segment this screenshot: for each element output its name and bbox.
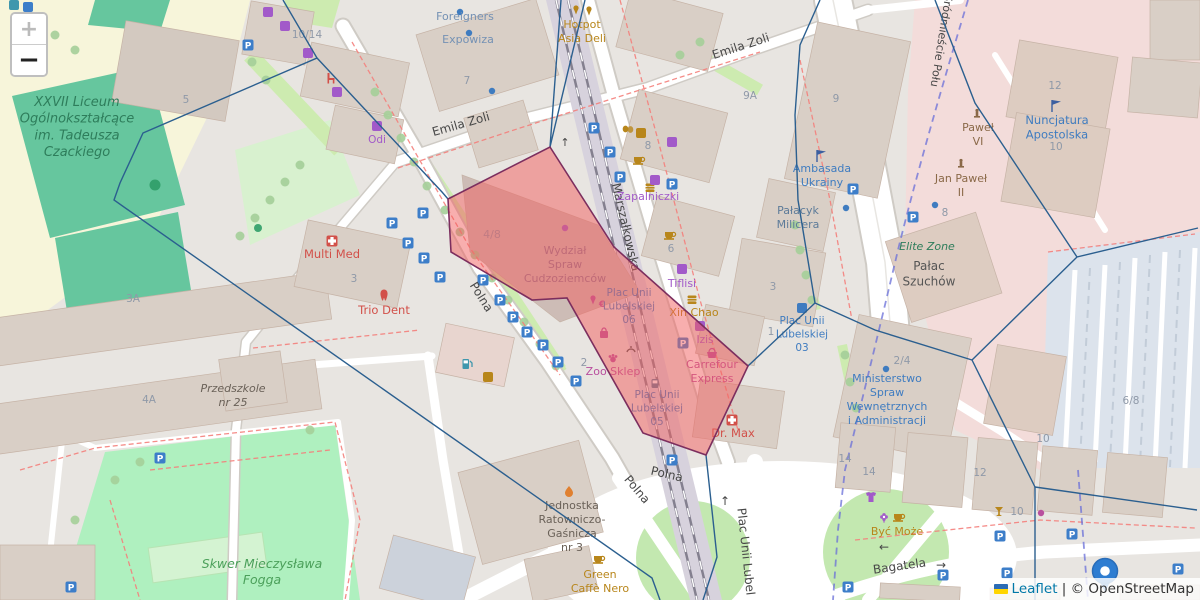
svg-text:P: P [524, 329, 531, 339]
parking-icon: P [387, 218, 398, 230]
map-label: 6/8 [1123, 395, 1140, 407]
map-label: 10/14 [292, 29, 323, 41]
map-label: 3A [126, 293, 141, 305]
parking-icon: P [538, 340, 549, 352]
svg-text:P: P [497, 297, 504, 307]
parking-icon: P [419, 253, 430, 265]
map-label: 3 [351, 273, 358, 285]
map-label: 14 [862, 466, 876, 478]
map-label: ↑ [560, 136, 569, 149]
sq-icon [332, 87, 342, 97]
attribution-separator: | [1058, 581, 1071, 597]
map-label: 6 [668, 243, 675, 255]
parking-icon: P [243, 40, 254, 52]
map-label: Foreigners [436, 10, 494, 23]
parking-icon: P [1173, 564, 1184, 576]
sq-icon [667, 137, 677, 147]
parking-icon: P [508, 312, 519, 324]
map-label: 7 [464, 75, 471, 87]
parking-icon: P [843, 582, 854, 594]
map-label: AmbasadaUkrainy [793, 162, 851, 189]
map-label: 8 [942, 207, 949, 219]
map-label: PałacykMilicera [777, 204, 820, 231]
svg-text:P: P [573, 378, 580, 388]
svg-text:P: P [555, 359, 562, 369]
parking-icon: P [908, 212, 919, 224]
sq-icon [483, 372, 493, 382]
map-label: MinisterstwoSprawWewnętrznychi Administr… [847, 372, 928, 427]
map-label: 9A [743, 90, 758, 102]
cross-icon [727, 415, 738, 426]
map-label: 2 [581, 357, 588, 369]
zoom-in-button[interactable]: + [12, 14, 46, 45]
cross-icon [327, 236, 338, 247]
dot-icon [489, 88, 495, 94]
sq-icon [677, 264, 687, 274]
attribution-bar: Leaflet | © OpenStreetMap [986, 578, 1200, 600]
parking-icon: P [155, 453, 166, 465]
svg-text:P: P [1175, 566, 1182, 576]
map-label: Tiflisi [667, 277, 696, 290]
map-label: 10 [1049, 141, 1062, 153]
svg-text:P: P [910, 214, 917, 224]
dot-icon [932, 202, 938, 208]
sq-icon [23, 2, 33, 12]
burger-icon [688, 296, 697, 305]
sq-icon [636, 128, 646, 138]
parking-icon: P [66, 582, 77, 594]
sq-icon [280, 21, 290, 31]
svg-text:P: P [997, 533, 1004, 543]
map-label: 8 [645, 140, 652, 152]
zoom-out-button[interactable]: − [12, 45, 46, 75]
parking-icon: P [495, 295, 506, 307]
sq-icon [650, 175, 660, 185]
leaflet-link[interactable]: Leaflet [1012, 581, 1058, 597]
parking-icon: P [553, 357, 564, 369]
parking-icon: P [418, 208, 429, 220]
svg-text:P: P [405, 240, 412, 250]
map-label: HotpotAsia Deli [558, 18, 606, 45]
parking-icon: P [848, 184, 859, 196]
svg-text:P: P [940, 572, 947, 582]
map-label: NuncjaturaApostolska [1025, 113, 1088, 142]
map-label: Trio Dent [357, 303, 410, 317]
map-label: 9 [833, 93, 840, 105]
parking-icon: P [667, 455, 678, 467]
map-label: ← [879, 540, 889, 554]
map-label: 10 [1036, 433, 1049, 445]
map-label: 10 [1010, 506, 1023, 518]
map-label: Być Może [871, 525, 924, 538]
map-label: Multi Med [304, 247, 360, 261]
svg-text:P: P [607, 149, 614, 159]
map-label: 4A [142, 394, 157, 406]
svg-text:P: P [669, 457, 676, 467]
svg-text:P: P [591, 125, 598, 135]
zoom-control: + − [10, 12, 48, 77]
map-label: Elite Zone [899, 240, 955, 253]
sq-icon [9, 0, 19, 10]
parking-icon: P [1067, 529, 1078, 541]
parking-icon: P [522, 327, 533, 339]
dot-icon [843, 205, 849, 211]
svg-text:P: P [437, 274, 444, 284]
parking-icon: P [435, 272, 446, 284]
parking-icon: P [995, 531, 1006, 543]
map-viewport[interactable]: PPPPPPPPPPPPPPPPPPPPPPPPPPPPP€ XXVII Lic… [0, 0, 1200, 600]
sq-icon [263, 7, 273, 17]
parking-icon: P [403, 238, 414, 250]
svg-text:P: P [420, 210, 427, 220]
dot-icon [1038, 510, 1044, 516]
parking-icon: P [605, 147, 616, 159]
svg-text:P: P [421, 255, 428, 265]
ukraine-flag-icon [994, 584, 1008, 594]
svg-text:P: P [245, 42, 252, 52]
svg-text:P: P [68, 584, 75, 594]
svg-text:P: P [157, 455, 164, 465]
map-canvas[interactable]: PPPPPPPPPPPPPPPPPPPPPPPPPPPPP€ XXVII Lic… [0, 0, 1200, 600]
map-label: Odi [368, 134, 386, 146]
map-label: 5 [183, 94, 190, 106]
map-label: 3 [770, 281, 777, 293]
map-label: ↑ [720, 494, 730, 508]
map-label: 2/4 [894, 355, 911, 367]
osm-copyright[interactable]: © OpenStreetMap [1071, 581, 1194, 597]
map-label: Zapalniczki [617, 190, 679, 203]
map-label: 12 [973, 467, 986, 479]
map-label: 14 [838, 453, 852, 465]
svg-text:P: P [510, 314, 517, 324]
svg-text:P: P [540, 342, 547, 352]
svg-text:P: P [1069, 531, 1076, 541]
parking-icon: P [667, 179, 678, 191]
map-label: → [936, 558, 946, 572]
parking-icon: P [571, 376, 582, 388]
svg-text:P: P [850, 186, 857, 196]
svg-text:P: P [389, 220, 396, 230]
parking-icon: P [589, 123, 600, 135]
svg-text:P: P [845, 584, 852, 594]
map-label: Expowiza [442, 33, 494, 46]
map-label: 1 [768, 326, 775, 338]
map-label: 12 [1048, 80, 1061, 92]
